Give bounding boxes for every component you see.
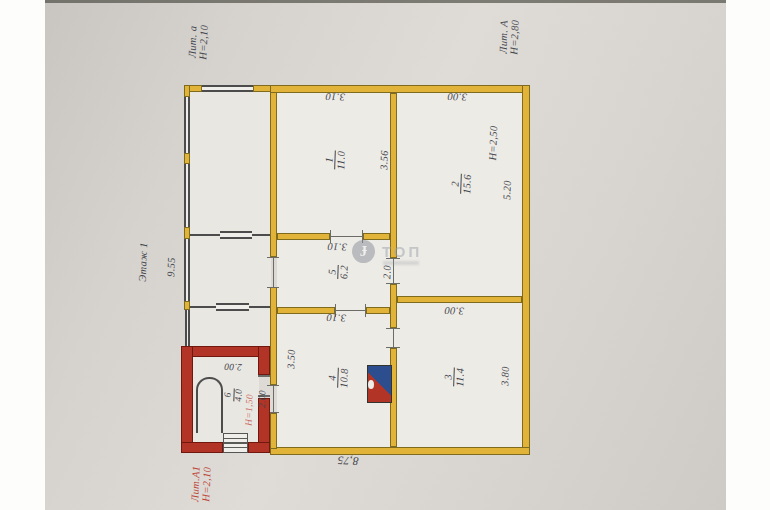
door-sill-line [258, 375, 270, 377]
door-jamb-tick [365, 304, 366, 317]
entrance-steps [223, 433, 248, 453]
room-area: 10.8 [338, 368, 350, 388]
veranda-window [184, 164, 190, 227]
door-opening [273, 386, 274, 413]
veranda-partition [249, 306, 271, 308]
room-area: 15.6 [461, 174, 473, 194]
dim-room3-depth: 3.80 [499, 366, 511, 386]
room1-label: 111.0 [323, 150, 347, 170]
room2-label: 215.6 [449, 174, 473, 194]
dim-room2-depth: 5.20 [501, 180, 513, 200]
main-wall-top [270, 85, 530, 93]
main-wall-left [270, 413, 277, 449]
annotation-veranda-bottom: Лит.А1 Н=2,10 [189, 466, 212, 503]
dim-building-depth: 9.55 [165, 257, 177, 277]
room-number: 2 [449, 174, 462, 194]
stove-door-dot [368, 380, 374, 389]
interior-wall-vertical [390, 93, 397, 258]
main-building-interior [277, 93, 523, 448]
room3-label: 311.4 [442, 367, 466, 387]
main-wall-right [522, 85, 530, 455]
height-label: Н=2,80 [508, 20, 520, 55]
veranda-window [202, 85, 253, 92]
veranda-partition [190, 234, 220, 236]
room2-height-note: Н=2,50 [487, 125, 499, 160]
interior-wall-room2-room3 [397, 296, 522, 303]
red-veranda-wall-top [181, 346, 270, 357]
height-label: Н=2,10 [200, 467, 212, 502]
dim-room4-width: 3.10 [326, 312, 346, 324]
door-jamb-tick [267, 257, 279, 258]
annotation-veranda-top: Лит. а Н=2,10 [186, 24, 209, 60]
room-area: 6.2 [338, 265, 349, 279]
door-jamb-tick [386, 347, 400, 348]
dim-room3-width: 3.00 [444, 305, 464, 317]
interior-wall-vertical [390, 284, 397, 328]
room-number: 5 [326, 265, 338, 279]
annotation-main-building: Лит. А Н=2,80 [497, 19, 520, 55]
veranda-wall-post [184, 153, 190, 164]
watermark-text: ТОП [382, 243, 422, 260]
main-wall-bottom [270, 447, 530, 455]
door-opening [335, 310, 366, 311]
room-number: 3 [442, 367, 455, 386]
door-jamb-tick [386, 328, 400, 329]
veranda-window [184, 239, 190, 301]
room-number: 1 [323, 150, 336, 169]
veranda-partition [252, 234, 271, 236]
door-opening [273, 258, 274, 287]
interior-wall-room5-room4 [366, 307, 390, 314]
door-jamb-tick [386, 283, 400, 284]
veranda-wall-post [184, 227, 190, 239]
room-area: 11.4 [454, 368, 466, 387]
veranda-wall-post [184, 85, 190, 97]
arched-doorway-symbol [196, 377, 223, 433]
dim-room4-depth: 3.50 [285, 349, 297, 369]
red-veranda-wall-bottom [181, 442, 223, 453]
veranda-window [184, 97, 190, 153]
interior-wall-room1-room5 [277, 233, 330, 240]
door-opening [393, 329, 394, 348]
height-label: Н=2,10 [197, 25, 209, 60]
photographed-floor-plan: Ɉ ТОП Этаж 1 9.55 8,75 Лит. а Н=2,10 Лит… [0, 0, 770, 510]
main-wall-left [270, 287, 277, 385]
watermark-logo-icon: Ɉ [352, 240, 375, 263]
dim-room5-width: 3.10 [327, 241, 347, 253]
room-area: 11.0 [335, 151, 347, 170]
dim-room1-width: 3.10 [325, 91, 345, 103]
floor-label: Этаж 1 [137, 242, 149, 282]
dim-building-width: 8,75 [337, 455, 359, 468]
dim-room5-depth: 2.0 [381, 265, 392, 279]
dim-room6-width: 2.00 [224, 361, 242, 372]
veranda-partition [190, 306, 216, 308]
dim-room6-door: 2.00 [258, 390, 269, 408]
room-number: 4 [326, 368, 339, 388]
red-veranda-wall-bottom [248, 442, 270, 453]
room4-label: 410.8 [326, 368, 350, 388]
red-veranda-wall-right [258, 346, 270, 375]
paper-top-edge-shadow [45, 0, 726, 3]
main-wall-left [270, 92, 277, 257]
door-jamb-tick [267, 385, 279, 386]
room6-label: 64.0 [223, 388, 244, 402]
veranda-wall [185, 310, 190, 347]
red-veranda-wall-left [181, 346, 193, 453]
dim-room2-width: 3.00 [447, 91, 467, 103]
room5-label: 56.2 [326, 265, 350, 280]
veranda-partition-window [216, 303, 249, 311]
veranda-partition-window [220, 231, 252, 239]
dim-room1-depth: 3.56 [378, 150, 390, 170]
room-area: 4.0 [234, 389, 244, 402]
door-jamb-tick [267, 287, 279, 288]
room6-height-note: Н=1,50 [244, 394, 255, 426]
